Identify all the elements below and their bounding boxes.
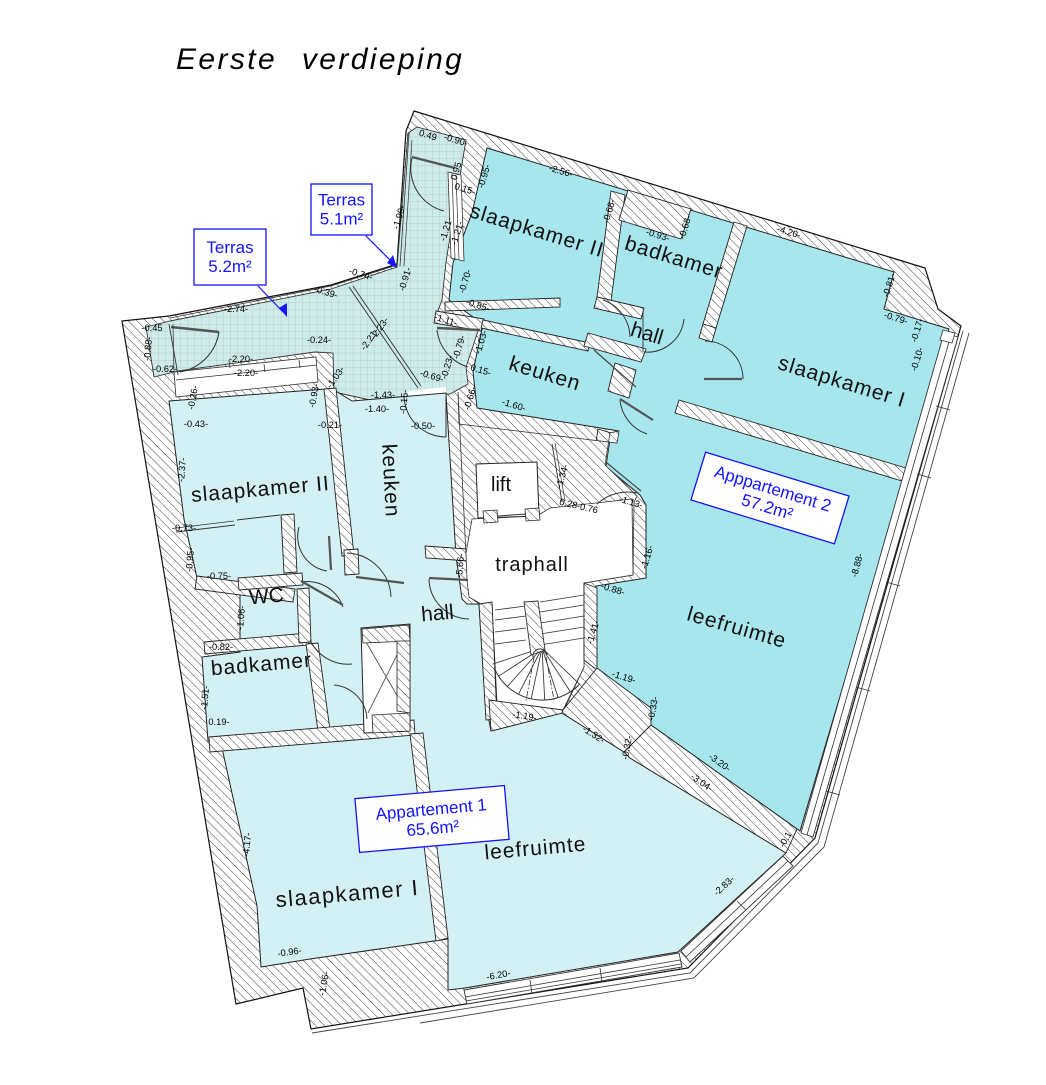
svg-text:-1.06-: -1.06- bbox=[235, 605, 247, 630]
svg-text:keuken: keuken bbox=[377, 443, 404, 518]
svg-text:Eerste verdieping: Eerste verdieping bbox=[176, 43, 464, 76]
svg-text:-0.88-: -0.88- bbox=[142, 336, 154, 361]
svg-text:-2.20-: -2.20- bbox=[234, 368, 258, 378]
svg-text:5.1m²: 5.1m² bbox=[320, 210, 364, 229]
svg-text:-0.82-: -0.82- bbox=[209, 642, 233, 652]
svg-text:lift: lift bbox=[491, 474, 511, 496]
svg-text:-0.43-: -0.43- bbox=[184, 419, 208, 429]
svg-text:-0.15-: -0.15- bbox=[398, 389, 410, 414]
svg-text:-0.45: -0.45 bbox=[141, 323, 162, 333]
svg-text:-0.75-: -0.75- bbox=[207, 571, 231, 581]
svg-text:-0.95-: -0.95- bbox=[184, 547, 196, 572]
svg-text:Terras: Terras bbox=[206, 238, 253, 257]
svg-text:-1.43-: -1.43- bbox=[371, 390, 395, 400]
svg-text:-0.21-: -0.21- bbox=[318, 420, 342, 430]
svg-text:-2.37-: -2.37- bbox=[176, 457, 188, 482]
svg-text:-2.74-: -2.74- bbox=[224, 304, 248, 314]
svg-text:-0.50-: -0.50- bbox=[411, 421, 435, 431]
svg-text:-1.51-: -1.51- bbox=[199, 685, 211, 710]
svg-text:Terras: Terras bbox=[318, 191, 365, 210]
svg-text:hall: hall bbox=[420, 601, 455, 627]
svg-text:5.2m²: 5.2m² bbox=[208, 257, 252, 276]
svg-text:WC: WC bbox=[248, 584, 285, 610]
svg-text:-0.73-: -0.73- bbox=[172, 523, 196, 533]
svg-text:-0.24-: -0.24- bbox=[307, 335, 331, 345]
svg-text:-2.20-: -2.20- bbox=[229, 354, 253, 364]
svg-text:-5.66-: -5.66- bbox=[454, 553, 466, 578]
svg-text:-1.40-: -1.40- bbox=[365, 404, 389, 414]
svg-text:traphall: traphall bbox=[495, 554, 569, 576]
svg-text:-4.17-: -4.17- bbox=[241, 832, 253, 857]
svg-text:0.19-: 0.19- bbox=[208, 717, 229, 727]
svg-text:-0.62-: -0.62- bbox=[153, 364, 177, 374]
